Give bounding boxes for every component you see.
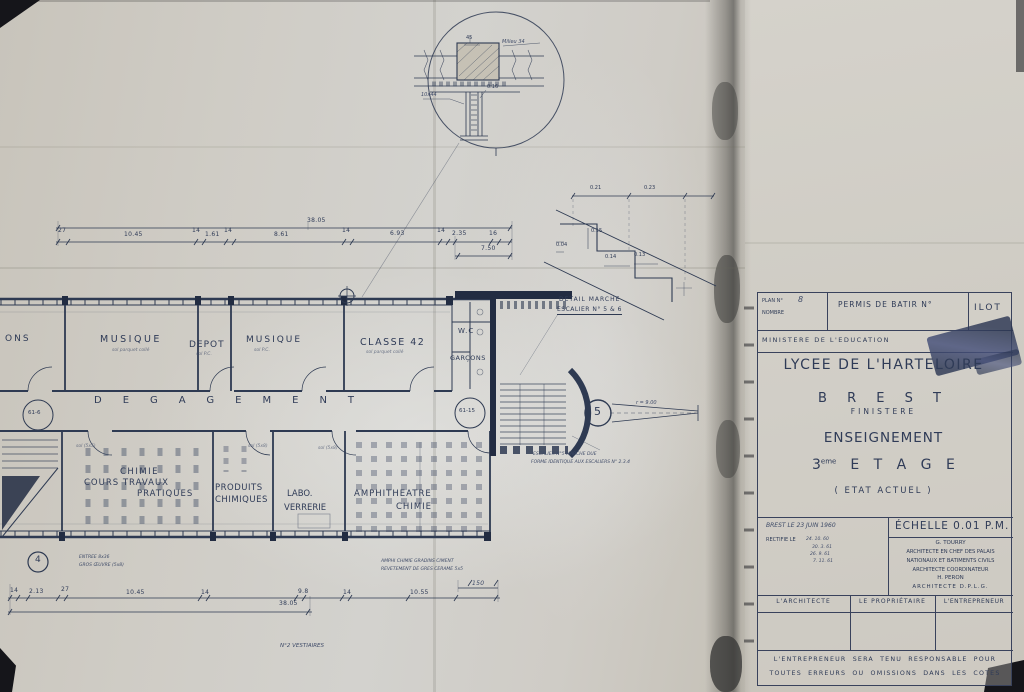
note-entree-2: GROS ŒUVRE (5x8): [79, 564, 124, 569]
left-stairwell: [2, 440, 58, 537]
sig-architecte: L'ARCHITECTE: [757, 599, 850, 605]
tb-line: [757, 612, 1013, 613]
axis-marker-right: 61-15: [459, 409, 475, 415]
room-label-musique-1: MUSIQUE: [100, 335, 162, 345]
tb-line: [757, 650, 1013, 651]
stair-number-5: 5: [594, 406, 601, 417]
room-sub-musique-1: sol parquet collé: [112, 349, 149, 354]
note-entree-1: ENTREE 8x36: [79, 556, 109, 561]
ilot-label: ILOT: [974, 304, 1002, 313]
scale-label: ÉCHELLE 0.01 P.M.: [895, 521, 1009, 532]
architect-line-4: H. PERON: [888, 576, 1013, 582]
dim-bot-right: 150: [472, 581, 484, 587]
detail-label-milieu: Milieu 34: [502, 40, 525, 45]
step-dim-014: 0.14: [605, 255, 616, 260]
dim-top-0: 27: [58, 228, 66, 234]
note-amphi-2: REVETEMENT DE GRES CERAME 5x5: [381, 568, 463, 573]
step-dim-004: 0.04: [556, 243, 567, 248]
dim-top-drop: 7.50: [481, 246, 496, 252]
plan-no-value: 8: [798, 296, 803, 304]
fold-edge-ticks: [744, 308, 754, 641]
dim-bot-7: 10.55: [410, 590, 429, 596]
dim-bot-5: 9.8: [298, 589, 308, 595]
project-subtitle: ENSEIGNEMENT: [757, 432, 1010, 446]
dim-top-7: 6.93: [390, 231, 405, 237]
nombre-label: NOMBRE: [762, 311, 784, 316]
blueprint-photo: ONS MUSIQUE sol parquet collé DEPOT sol …: [0, 0, 1024, 692]
room-label-cours-travaux: COURS TRAVAUX: [84, 479, 169, 488]
note-amphi-1: AMPHI CHIMIE GRADINS CIMENT: [381, 560, 454, 565]
dim-top-5: 8.61: [274, 232, 289, 238]
dim-top-4: 14: [224, 228, 232, 234]
stair-number-4: 4: [35, 556, 41, 565]
architect-line-3: ARCHITECTE COORDINATEUR: [888, 568, 1013, 573]
permis-label: PERMIS DE BATIR N°: [838, 301, 933, 309]
floor-number: 3: [812, 457, 821, 473]
room-label-wc: W.C: [458, 328, 474, 335]
detail-dim-1044: 10x44: [421, 93, 437, 98]
room-label-chimie: CHIMIE: [120, 468, 159, 477]
step-dim-023: 0.23: [644, 186, 655, 191]
tb-line: [757, 595, 1013, 596]
floor-finish-note-1: sol (5x5): [76, 445, 96, 450]
note-vestiaires: N°2 VESTIAIRES: [280, 644, 324, 650]
rectif-label: RECTIFIE LE: [766, 538, 796, 543]
dim-bot-1: 2.13: [29, 589, 44, 595]
dim-top-9: 2.35: [452, 231, 467, 237]
floor-superscript: eme: [821, 457, 836, 465]
tb-line: [888, 537, 1013, 538]
rectif-date-0: 24. 10. 60: [806, 538, 829, 543]
dim-top-1: 10.45: [124, 232, 143, 238]
dim-bot-6: 14: [343, 590, 351, 596]
architect-line-0: G. TOURRY: [888, 541, 1013, 547]
state-label: ( ETAT ACTUEL ): [757, 487, 1010, 496]
room-label-pratiques: PRATIQUES: [137, 490, 193, 499]
dim-bot-2: 27: [61, 587, 69, 593]
ministere-label: MINISTERE DE L'EDUCATION: [762, 337, 890, 344]
architect-line-5: ARCHITECTE D.P.L.G.: [888, 585, 1013, 591]
tb-line: [757, 517, 1013, 518]
detail-dim-016: 0.16: [487, 85, 498, 90]
room-label-classe-42: CLASSE 42: [360, 338, 425, 348]
dim-top-total: 38.05: [307, 218, 326, 224]
step-dim-013: 0.13: [634, 253, 645, 258]
reference-circles: [23, 286, 611, 572]
date-line: BREST LE 23 JUIN 1960: [766, 523, 836, 529]
axis-marker-left: 61-6: [28, 411, 40, 417]
step-dim-021: 0.21: [590, 186, 601, 191]
right-stairwell: [500, 305, 698, 456]
dim-top-10: 16: [489, 231, 497, 237]
detail-dim-45: 45: [466, 36, 472, 41]
room-label-partial: ONS: [5, 335, 31, 344]
tb-line: [827, 292, 828, 330]
disclaimer-line-1: L'ENTREPRENEUR SERA TENU RESPONSABLE POU…: [757, 657, 1013, 663]
floor-title: 3emeE T A G E: [812, 458, 960, 472]
dim-bot-3: 10.45: [126, 590, 145, 596]
room-label-verrerie: VERRERIE: [284, 504, 326, 513]
dim-top-8: 14: [437, 228, 445, 234]
note-detail-marche-1: DETAIL MARCHE: [559, 297, 620, 303]
room-sub-depot: sol P.C.: [196, 353, 212, 358]
tb-line: [888, 517, 889, 595]
room-label-produits: PRODUITS: [215, 484, 263, 493]
rectif-date-1: 30. 3. 61: [812, 546, 832, 551]
floor-finish-note-2: sol (5x8): [248, 445, 268, 450]
dim-top-2: 14: [192, 228, 200, 234]
dim-top-6: 14: [342, 228, 350, 234]
step-dim-015: 0.15: [591, 229, 602, 234]
project-title: LYCEE DE L'HARTELOIRE: [757, 358, 1010, 372]
dim-bot-0: 14: [10, 588, 18, 594]
disclaimer-line-2: TOUTES ERREURS OU OMISSIONS DANS LES COT…: [757, 671, 1013, 677]
note-detail-marche-2: ESCALIER N° 5 & 6: [557, 307, 622, 315]
floor-finish-note-3: sol (5x8): [318, 447, 338, 452]
plan-no-label: PLAN N°: [762, 299, 783, 304]
architect-line-1: ARCHITECTE EN CHEF DES PALAIS: [888, 550, 1013, 555]
project-department: FINISTERE: [757, 408, 1010, 416]
room-label-garcons: GARÇONS: [450, 355, 486, 362]
dim-top-3: 1.61: [205, 232, 220, 238]
dim-bot-4: 14: [201, 590, 209, 596]
room-label-musique-2: MUSIQUE: [246, 336, 302, 345]
project-city: B R E S T: [757, 392, 1010, 405]
room-label-depot: DEPOT: [189, 341, 225, 350]
room-sub-musique-2: sol P.C.: [254, 349, 270, 354]
radius-annotation: r = 9.00: [636, 401, 657, 406]
tb-line: [968, 292, 969, 330]
room-label-amphitheatre: AMPHITHEATRE: [354, 490, 432, 499]
dim-bot-total: 38.05: [279, 601, 298, 607]
sig-proprietaire: LE PROPRIÉTAIRE: [850, 599, 935, 605]
room-label-labo: LABO.: [287, 490, 312, 499]
note-escalier5-2: FORME IDENTIQUE AUX ESCALIERS N° 2.3.4: [531, 461, 630, 466]
note-escalier5-1: ESCALIER N°5 MARCHE DUE: [533, 453, 597, 458]
room-sub-classe-42: sol parquet collé: [366, 351, 403, 356]
architect-line-2: NATIONAUX ET BATIMENTS CIVILS: [888, 559, 1013, 564]
room-label-amphi-chimie: CHIMIE: [396, 503, 432, 512]
rectif-date-2: 26. 9. 61: [810, 553, 830, 558]
rectif-date-3: 7. 11. 61: [813, 560, 833, 565]
corridor-label-degagement: DEGAGEMENT: [94, 396, 375, 406]
room-label-chimiques: CHIMIQUES: [215, 496, 268, 505]
sig-entrepreneur: L'ENTREPRENEUR: [935, 599, 1013, 605]
floor-word: E T A G E: [850, 457, 959, 473]
